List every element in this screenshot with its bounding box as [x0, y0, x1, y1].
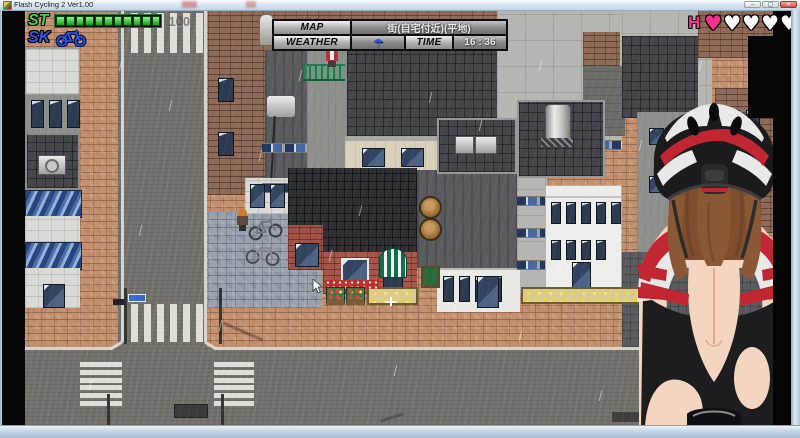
- weather-label: WEATHER: [286, 37, 338, 48]
- stamina-segment: [76, 16, 85, 26]
- mouse-cursor-icon: [312, 279, 324, 295]
- stamina-segment: [114, 16, 123, 26]
- sparkle-icon: [386, 297, 395, 306]
- heart-icon: ♥: [742, 14, 760, 32]
- stamina-value: 100: [168, 14, 190, 29]
- maximize-button[interactable]: ▢: [762, 1, 779, 8]
- skill-hud: SK: [28, 29, 87, 47]
- heart-icon: ♥: [761, 14, 779, 32]
- time-label: TIME: [416, 37, 441, 48]
- umbrella-icon: ☂: [373, 36, 384, 50]
- stamina-segment: [133, 16, 142, 26]
- hearts-row: ♥♥♥♥♥: [704, 14, 798, 32]
- map-edge-corner: [748, 36, 775, 118]
- h-meter: H ♥♥♥♥♥: [688, 13, 798, 33]
- info-panel: MAP 街(自宅付近)(平地) WEATHER ☂ TIME 16 : 36: [272, 19, 508, 51]
- titlebar-smudge: [182, 1, 197, 8]
- time-value: 16 : 36: [464, 37, 495, 48]
- stamina-label: ST: [28, 12, 48, 30]
- app-window: { "window": { "title": "Flash Cycling 2 …: [0, 0, 800, 437]
- skill-label: SK: [28, 29, 50, 47]
- heart-icon: ♥: [723, 14, 741, 32]
- game-viewport[interactable]: ST 100 SK MAP 街(自宅付近)(平地): [0, 0, 800, 437]
- map-edge-right: [773, 10, 791, 425]
- bicycle-icon: [55, 29, 87, 47]
- helmet-vent: [709, 103, 719, 121]
- weather-label-cell: WEATHER: [272, 34, 352, 51]
- map-label: MAP: [300, 22, 323, 33]
- time-label-cell: TIME: [404, 34, 454, 51]
- weather-icon-cell: ☂: [350, 34, 406, 51]
- window-title: Flash Cycling 2 Ver1.00: [14, 0, 93, 10]
- close-button[interactable]: ✕: [780, 1, 797, 8]
- map-value: 街(自宅付近)(平地): [387, 20, 470, 35]
- stamina-segment: [152, 16, 161, 26]
- cyclist-character-art: [637, 82, 792, 427]
- app-icon: [3, 1, 12, 10]
- window-border-left: [0, 10, 2, 425]
- stamina-hud: ST 100: [28, 12, 190, 30]
- stamina-segment: [142, 16, 151, 26]
- stamina-segment: [56, 16, 65, 26]
- titlebar-smudge: [246, 1, 256, 8]
- window-border-right: [791, 10, 800, 425]
- stamina-segment: [66, 16, 75, 26]
- stamina-segment: [104, 16, 113, 26]
- h-label: H: [688, 13, 700, 33]
- stamina-segment: [123, 16, 132, 26]
- stamina-bar: [54, 14, 162, 28]
- window-controls: – ▢ ✕: [744, 1, 797, 8]
- stamina-segment: [95, 16, 104, 26]
- skin-tear-right: [734, 347, 770, 409]
- time-value-cell: 16 : 36: [452, 34, 508, 51]
- stamina-segment: [85, 16, 94, 26]
- title-bar[interactable]: Flash Cycling 2 Ver1.00 – ▢ ✕: [0, 0, 800, 11]
- window-border-bottom: [0, 425, 800, 438]
- heart-icon: ♥: [704, 14, 722, 32]
- weather-time-row: WEATHER ☂ TIME 16 : 36: [272, 34, 508, 51]
- hair-tail: [697, 182, 731, 266]
- minimize-button[interactable]: –: [744, 1, 761, 8]
- map-edge-left: [2, 10, 25, 425]
